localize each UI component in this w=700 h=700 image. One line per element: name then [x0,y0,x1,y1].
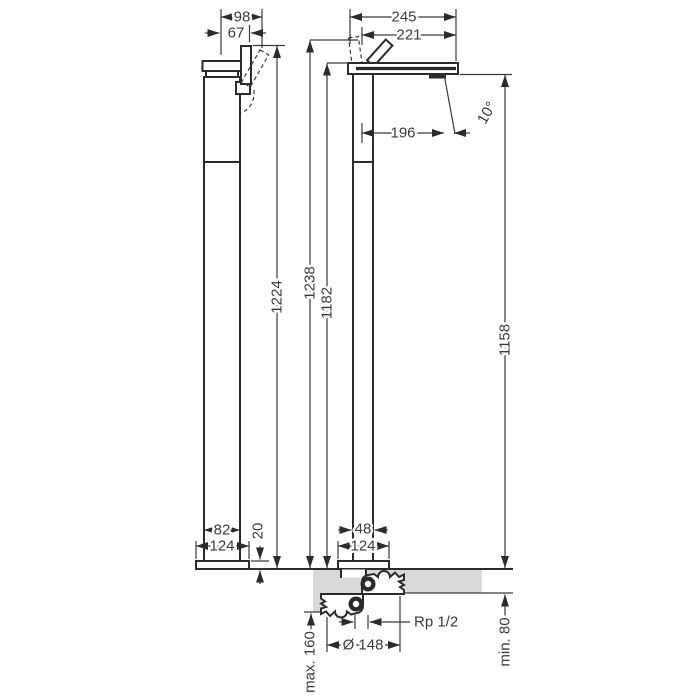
dim-221-label: 221 [396,27,421,44]
dim-max160-label: max. 160 [302,631,319,693]
dim-1158-label: 1158 [497,324,514,356]
dim-1238-label: 1238 [302,266,319,299]
dim-82-label: 82 [214,522,231,539]
drawing-canvas: 98 67 1224 82 124 20 245 221 196 10° 123… [0,0,700,700]
side-base-plate [196,561,249,569]
dim-245-label: 245 [391,9,416,26]
dim-min80-label: min. 80 [497,617,514,666]
supply-pipe [341,570,366,578]
dim-48-label: 48 [355,521,372,538]
dim-124r-label: 124 [350,538,375,555]
dim-124l-label: 124 [209,538,234,555]
dim-196-label: 196 [390,125,415,142]
dim-67-label: 67 [228,25,245,42]
side-column [204,77,240,561]
dim-98-label: 98 [234,9,251,26]
dim-1224-label: 1224 [269,280,286,313]
side-cap-collar [206,71,238,77]
dim-rp-label: Rp 1/2 [414,614,458,631]
dim-d148-label: Ø 148 [343,637,384,654]
dim-1182-label: 1182 [319,287,336,319]
technical-drawing: 98 67 1224 82 124 20 245 221 196 10° 123… [0,0,700,700]
front-column [353,74,373,561]
dim-20-label: 20 [250,523,267,540]
front-base-plate [338,561,389,569]
side-handle [241,46,251,84]
side-cap [203,61,243,71]
